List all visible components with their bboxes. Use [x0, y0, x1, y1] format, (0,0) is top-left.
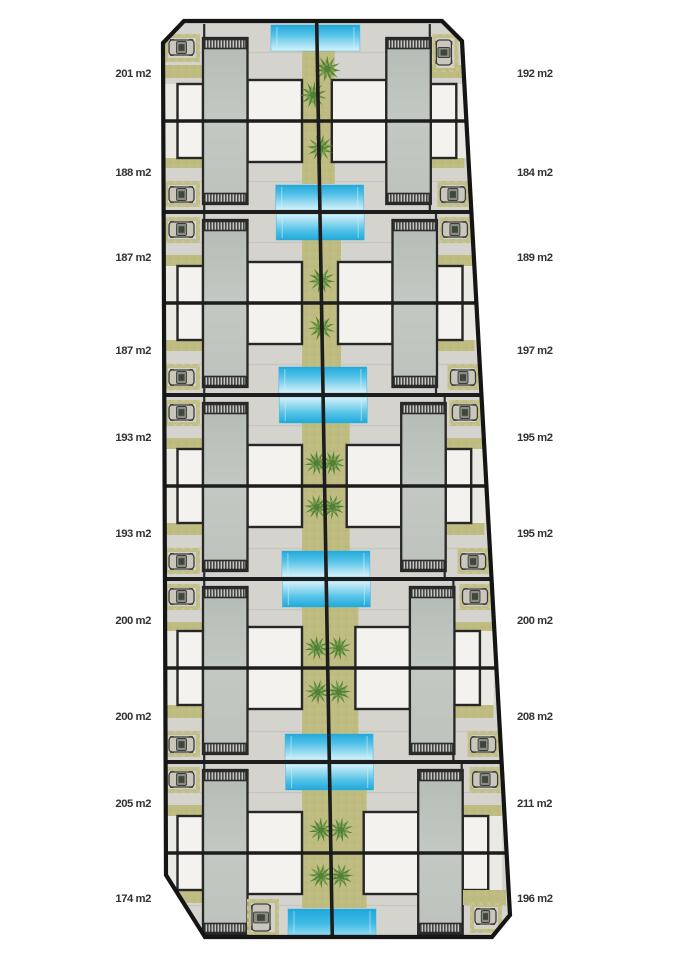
svg-text:195 m2: 195 m2 — [517, 432, 553, 444]
svg-text:197 m2: 197 m2 — [517, 345, 553, 357]
svg-text:192 m2: 192 m2 — [517, 68, 553, 80]
svg-text:201 m2: 201 m2 — [115, 68, 151, 80]
svg-text:196 m2: 196 m2 — [517, 893, 553, 905]
svg-text:205 m2: 205 m2 — [115, 798, 151, 810]
svg-text:200 m2: 200 m2 — [115, 615, 151, 627]
svg-text:208 m2: 208 m2 — [517, 711, 553, 723]
svg-text:189 m2: 189 m2 — [517, 252, 553, 264]
svg-text:200 m2: 200 m2 — [517, 615, 553, 627]
svg-text:211 m2: 211 m2 — [517, 798, 552, 810]
svg-text:174 m2: 174 m2 — [115, 893, 151, 905]
svg-text:188 m2: 188 m2 — [115, 167, 151, 179]
svg-text:200 m2: 200 m2 — [115, 711, 151, 723]
svg-text:193 m2: 193 m2 — [115, 432, 151, 444]
svg-text:195 m2: 195 m2 — [517, 528, 553, 540]
svg-text:184 m2: 184 m2 — [517, 167, 553, 179]
svg-text:187 m2: 187 m2 — [115, 252, 151, 264]
svg-text:187 m2: 187 m2 — [115, 345, 151, 357]
svg-text:193 m2: 193 m2 — [115, 528, 151, 540]
